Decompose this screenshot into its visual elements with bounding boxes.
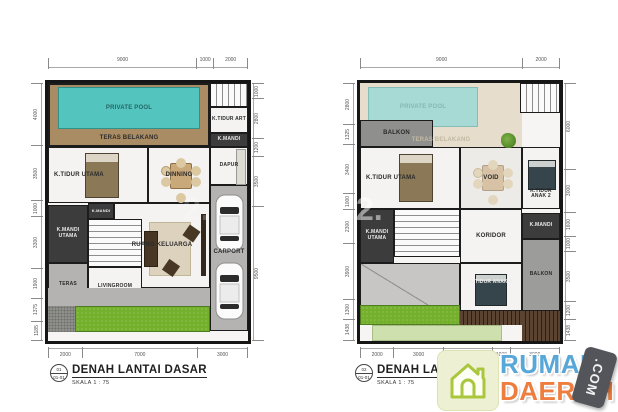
dim-label: 2000	[522, 58, 560, 69]
dim-segment: 1000	[31, 200, 43, 216]
room-label: DAPUR	[220, 163, 239, 169]
dim-line-left-plan2: 2800 1325 3400 1000 2300 3900 1300 1438	[343, 83, 355, 341]
dim-label: 3500	[35, 168, 40, 179]
sheet-number: 01-01	[53, 374, 65, 380]
dim-label: 1185	[34, 325, 39, 336]
dim-label: 4000	[35, 109, 40, 120]
dim-label: 1375	[35, 304, 40, 315]
bed-icon	[528, 160, 556, 190]
room-k-tidur-art: K.TIDUR ART	[210, 107, 248, 133]
dim-segment: 3500	[564, 251, 576, 301]
car-icon	[214, 262, 245, 320]
stairs-main	[394, 209, 460, 257]
dim-line-top-plan2: 9000 2000	[360, 58, 560, 69]
dim-label: 1000	[35, 203, 40, 214]
room-k-tidur-anak1: K.TIDUR ANAK 1	[460, 263, 522, 311]
dim-label: 1200	[256, 142, 261, 153]
dim-line-top-plan1: 9000 1000 2000	[48, 58, 248, 69]
dim-label: 1325	[347, 129, 352, 140]
room-label: VOID	[483, 175, 498, 182]
house-icon-glyph	[446, 359, 490, 403]
room-label: LIVINGROOM	[98, 284, 132, 290]
room-label: K.TIDUR ANAK 1	[461, 280, 521, 286]
dim-segment: 1438	[343, 319, 355, 341]
room-label: DINNING	[166, 172, 193, 179]
drawing-marker: 02 01-01	[355, 364, 373, 382]
dim-segment: 1200	[564, 301, 576, 319]
room-private-pool: PRIVATE POOL	[58, 87, 200, 129]
room-label: BALKON	[530, 272, 553, 278]
stairs-top	[210, 83, 248, 107]
grass-strip	[360, 305, 460, 325]
dim-label: 6000	[568, 121, 573, 132]
dim-segment: 1000	[252, 83, 264, 98]
drawing-number: 01	[51, 367, 67, 374]
dim-label: 1000	[568, 238, 573, 249]
room-label: K.TIDUR UTAMA	[54, 172, 104, 179]
room-label: BALKON	[383, 130, 410, 137]
room-label: TERAS BELAKANG	[50, 135, 208, 142]
dim-label: 3000	[568, 185, 573, 196]
dim-segment: 2800	[343, 83, 355, 124]
room-label: K.TIDUR UTAMA	[366, 175, 416, 182]
dim-line-right-plan2: 6000 3000 1600 1000 3500 1200 1438	[564, 83, 576, 341]
gravel-patch	[48, 306, 75, 332]
room-label: K.TIDUR ART	[212, 117, 246, 123]
room-label: K.MANDI	[218, 137, 241, 143]
dim-label: 9000	[48, 58, 196, 69]
room-label: K.MANDI UTAMA	[361, 230, 393, 242]
dim-label: 1300	[347, 304, 352, 315]
dim-segment: 6000	[564, 83, 576, 169]
dim-segment: 1300	[343, 299, 355, 319]
drawing-number: 02	[356, 367, 372, 374]
dim-label: 3900	[347, 266, 352, 277]
stairs-top	[520, 83, 560, 113]
dim-segment: 2800	[252, 98, 264, 138]
wood-deck-strip	[522, 311, 560, 341]
room-dinning: DINNING	[148, 147, 210, 203]
room-void: VOID	[460, 147, 522, 209]
room-label: CARPORT	[211, 249, 247, 256]
room-label: PRIVATE POOL	[400, 104, 446, 111]
room-k-tidur-anak2: K.TIDUR ANAK 2	[522, 147, 560, 209]
dim-label: 2000	[213, 58, 248, 69]
dim-line-left-plan1: 4000 3500 1000 3300 1900 1375 1185	[31, 83, 43, 341]
dim-label: 2800	[256, 113, 261, 124]
dim-label: 9500	[256, 268, 261, 279]
upper-floor-plan: TERAS BELAKANG PRIVATE POOL BALKON K.TID…	[357, 80, 563, 344]
dim-label: 3500	[568, 271, 573, 282]
dim-segment: 1375	[31, 298, 43, 320]
dim-label: 1438	[347, 324, 352, 335]
wood-deck-strip	[460, 311, 522, 325]
dim-segment: 1000	[343, 193, 355, 208]
dim-segment: 1185	[31, 321, 43, 341]
dim-label: 2000	[48, 347, 82, 358]
house-icon	[437, 350, 499, 411]
dim-line-bottom-plan1: 2000 7000 3000	[48, 347, 248, 358]
room-dapur: DAPUR	[210, 147, 248, 185]
dim-label: 7000	[82, 347, 197, 358]
grass-strip	[75, 306, 210, 332]
dim-segment: 1900	[31, 268, 43, 298]
dim-segment: 3400	[343, 144, 355, 194]
room-k-mandi: K.MANDI	[522, 213, 560, 239]
dim-label: 3400	[347, 163, 352, 174]
dim-label: 1600	[568, 219, 573, 230]
room-balkon-kanan: BALKON	[522, 239, 560, 311]
dim-segment: 3000	[564, 169, 576, 212]
room-koridor: KORIDOR	[460, 209, 522, 263]
dim-label: 3000	[197, 347, 248, 358]
dim-label: 1000	[256, 85, 261, 96]
room-label: RUANG KELUARGA	[132, 242, 192, 249]
ground-floor-plan: TERAS BELAKANG PRIVATE POOL K.TIDUR ART …	[45, 80, 251, 344]
room-label: KORIDOR	[476, 233, 506, 240]
tv-console	[201, 214, 206, 276]
dim-label: 9000	[360, 58, 522, 69]
dim-segment: 3900	[343, 243, 355, 300]
room-label: K.MANDI	[530, 223, 553, 229]
floor-plan-image: 9000 1000 2000 4000 3500 1000 3300 1900 …	[0, 0, 618, 412]
room-label: K.TIDUR ANAK 2	[523, 189, 559, 201]
drawing-marker: 01 01-01	[50, 364, 68, 382]
dim-segment: 1438	[564, 319, 576, 341]
dim-label: 1000	[196, 58, 213, 69]
dim-label: 1000	[347, 196, 352, 207]
room-label: TERAS	[59, 282, 77, 288]
sofa-set-icon	[149, 222, 191, 276]
dim-label: 2800	[347, 98, 352, 109]
dim-label: 1200	[568, 305, 573, 316]
dim-segment: 1000	[564, 236, 576, 251]
room-k-mandi-utama: K.MANDI UTAMA	[360, 209, 394, 263]
room-k-tidur-utama: K.TIDUR UTAMA	[48, 147, 148, 203]
plan-title: DENAH LANTAI DASAR	[72, 364, 207, 378]
dim-segment: 1600	[564, 212, 576, 236]
dim-segment: 3500	[252, 156, 264, 206]
dim-line-right-plan1: 1000 2800 1200 3500 9500	[252, 83, 264, 341]
rumahdaerah-logo: RUMAH DAERAH .COM	[437, 347, 618, 412]
dim-label: 2300	[347, 221, 352, 232]
dim-label: 1438	[568, 325, 573, 336]
room-label: K.MANDI UTAMA	[49, 228, 87, 240]
room-carport: CARPORT	[210, 185, 248, 331]
dim-segment: 3500	[31, 145, 43, 200]
room-label: K.MANDI	[92, 209, 111, 214]
dim-label: 1900	[35, 278, 40, 289]
front-path	[48, 288, 210, 306]
dim-label: 3000	[393, 347, 443, 358]
sheet-number: 01-01	[358, 374, 370, 380]
logo-com-text: .COM	[582, 357, 607, 398]
light-green-strip	[372, 325, 502, 341]
dim-segment: 2300	[343, 209, 355, 243]
room-label: TERAS BELAKANG	[360, 137, 522, 144]
dim-label: 3500	[256, 176, 261, 187]
dim-label: 3300	[35, 237, 40, 248]
dim-segment: 1325	[343, 124, 355, 144]
room-k-mandi: K.MANDI	[88, 203, 114, 219]
dim-segment: 3300	[31, 216, 43, 268]
dim-segment: 1200	[252, 138, 264, 156]
dim-segment: 9500	[252, 206, 264, 341]
car-icon	[214, 194, 245, 252]
room-k-mandi-atas: K.MANDI	[210, 133, 248, 147]
room-k-mandi-utama: K.MANDI UTAMA	[48, 205, 88, 263]
room-label: PRIVATE POOL	[106, 105, 152, 112]
dim-segment: 4000	[31, 83, 43, 145]
dim-label: 2000	[360, 347, 393, 358]
plan1-title-block: 01 01-01 DENAH LANTAI DASAR SKALA 1 : 75	[50, 364, 207, 386]
room-k-tidur-utama: K.TIDUR UTAMA	[360, 147, 460, 209]
plan-scale: SKALA 1 : 75	[72, 380, 207, 386]
